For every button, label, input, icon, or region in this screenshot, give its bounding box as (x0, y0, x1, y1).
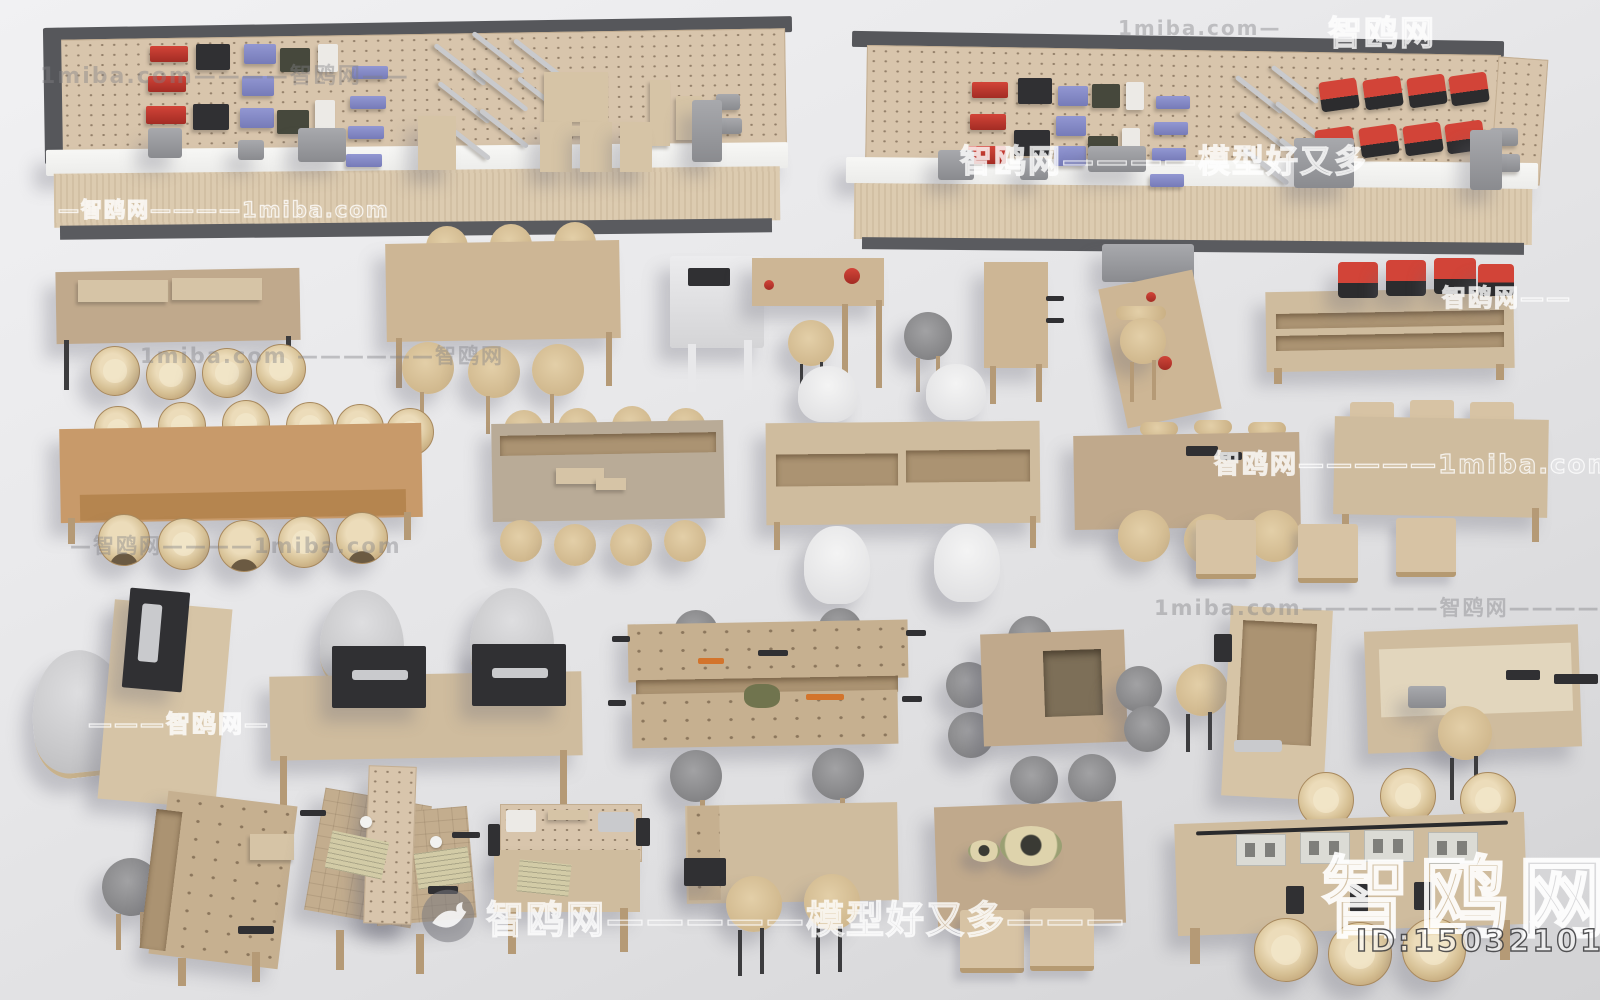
vise-handle (1046, 318, 1064, 323)
ceramic-bowl (968, 840, 1000, 862)
square-stool (1030, 908, 1094, 971)
log-stool (202, 348, 252, 398)
log-stool (146, 350, 196, 400)
table-leg (1496, 364, 1504, 380)
table-leg (404, 512, 411, 540)
worktable-top (1333, 416, 1549, 518)
wood-jig-block (580, 122, 612, 172)
clamp-handle (452, 832, 480, 838)
stool-seat (1116, 666, 1162, 712)
bottle (430, 836, 442, 848)
stool-leg (1130, 362, 1134, 402)
newspaper (414, 846, 472, 889)
stool-leg (760, 928, 764, 974)
table-leg (68, 518, 75, 544)
bench-grinder (298, 128, 346, 162)
stool-leg (1152, 360, 1156, 400)
wood-jig-block (540, 122, 572, 172)
vise-bench (984, 262, 1048, 368)
red-clamp-set (146, 106, 186, 124)
organizer-tray (500, 432, 716, 456)
power-drill (1362, 76, 1404, 111)
plier-set (352, 66, 388, 79)
plier-set (1152, 148, 1186, 161)
concrete-block (1300, 832, 1350, 864)
hand-planer (1088, 146, 1146, 172)
clamp-handle (902, 696, 922, 702)
table-leg (508, 912, 516, 954)
chair-white (804, 526, 870, 604)
organizer-tray (776, 453, 898, 486)
stool-seat (1120, 318, 1166, 364)
tool-stand (1470, 130, 1502, 190)
table-leg (1274, 368, 1282, 384)
stool-seat (532, 344, 584, 396)
log-stool (336, 512, 388, 564)
stool-seat (788, 320, 834, 366)
plier-set (348, 126, 384, 139)
stool-seat (1118, 510, 1170, 562)
square-stool (1298, 524, 1358, 583)
clamp-handle (300, 810, 326, 816)
chisel-set (244, 44, 276, 64)
mallet-pair (1014, 130, 1050, 156)
bench-tray (1237, 620, 1317, 746)
clamp-handle (1350, 884, 1368, 912)
log-stool (278, 516, 330, 568)
square-stool (1196, 520, 1256, 579)
stool-seat (554, 524, 596, 566)
machine-detail (492, 668, 548, 678)
plier-set (346, 154, 382, 167)
hand-plane (596, 478, 626, 490)
stool-leg (738, 930, 742, 976)
red-clamp-set (150, 46, 188, 62)
table-leg (64, 340, 69, 390)
concrete-block (1364, 830, 1414, 862)
tool-tray (78, 280, 168, 302)
pegboard-frame-side-left (43, 28, 63, 164)
mallet-pair (196, 44, 230, 70)
stool-seat (812, 748, 864, 800)
newspaper (516, 859, 571, 896)
dowel-set (318, 44, 338, 72)
anvil (238, 140, 264, 160)
mallet-pair (1018, 78, 1052, 104)
stool-seat (726, 876, 782, 932)
log-stool (1254, 918, 1318, 982)
shelf-bench (1265, 288, 1514, 372)
concrete-block (1428, 832, 1478, 864)
stool-leg (1186, 714, 1190, 752)
square-jig (544, 72, 608, 122)
dog-hole-strip (687, 806, 721, 901)
stool-seat (402, 342, 454, 394)
chisel-set (242, 76, 274, 96)
table-leg (774, 522, 780, 550)
power-drill (1448, 72, 1490, 107)
red-clamp-set (972, 82, 1008, 98)
bench-vise (1408, 686, 1446, 708)
bench-vise (938, 150, 974, 180)
log-stool (1402, 918, 1466, 982)
table-cutout (1043, 649, 1103, 717)
stool-leg (916, 358, 920, 392)
hammer-pair (1092, 84, 1120, 108)
stool-leg (1208, 712, 1212, 750)
watermark: 1miba.com——————智鸥网———— (1154, 592, 1600, 622)
chair-white (798, 366, 858, 422)
plier-set (1154, 122, 1188, 135)
render-canvas: 1miba.com————智鸥网—— 1miba.com— 智鸥网 智鸥网———… (0, 0, 1600, 1000)
red-dot (844, 268, 860, 284)
bracket (636, 818, 650, 846)
stool-leg (1450, 758, 1454, 800)
model-id-label: ID:150321013 (1356, 924, 1600, 959)
red-dot (1146, 292, 1156, 302)
saw-blade-slot (688, 268, 730, 286)
clamp-handle (612, 636, 630, 642)
table-leg (606, 332, 612, 386)
plier-set (350, 96, 386, 109)
hammer-pair (280, 48, 310, 72)
machine-leg (688, 344, 696, 392)
stool-seat (804, 874, 860, 930)
table-leg (1036, 364, 1042, 402)
organizer-tray (906, 449, 1030, 482)
stool-leg (486, 396, 490, 434)
clamp-handle (608, 700, 626, 706)
stool-seat (1010, 756, 1058, 804)
wood-level (650, 80, 670, 146)
stool-seat (468, 346, 520, 398)
hand-tool (1220, 452, 1242, 460)
clamp-handle (1286, 886, 1304, 914)
table-leg (416, 934, 424, 974)
log-stool (218, 520, 270, 572)
machine-detail (352, 670, 408, 680)
hand-saw (598, 812, 634, 832)
clamp-handle (1554, 674, 1598, 684)
wood-jig-block (620, 122, 652, 172)
hand-tool (1020, 158, 1048, 180)
red-clamp-set (970, 114, 1006, 130)
mallet-pair (193, 104, 229, 130)
stool-leg (116, 914, 121, 950)
tool-tray (172, 278, 262, 300)
table-leg (1500, 920, 1510, 960)
log-stool (98, 514, 150, 566)
stool-seat (1438, 706, 1492, 760)
stool-leg (816, 928, 820, 974)
clamp-handle (1234, 740, 1282, 752)
square-stool (960, 910, 1024, 973)
dowel-set (315, 100, 335, 130)
table-leg (1532, 508, 1539, 542)
bottle (360, 816, 372, 828)
counter-front-right (854, 183, 1532, 245)
ceramic-bowl (1000, 826, 1062, 866)
machine-leg (744, 340, 752, 390)
work-gloves (744, 684, 780, 708)
step-blocks (250, 834, 294, 860)
power-drill (1406, 74, 1448, 109)
screwdriver (698, 658, 724, 664)
table-leg (620, 908, 628, 952)
power-tool (1294, 138, 1354, 188)
chair-white (934, 524, 1000, 602)
stool-seat (904, 312, 952, 360)
stool-seat (1176, 664, 1228, 716)
table-leg (990, 366, 996, 404)
red-clamp-set (148, 76, 186, 92)
table-leg (1030, 516, 1036, 548)
stool-seat (1124, 706, 1170, 752)
screwdriver (806, 694, 844, 700)
power-drill (1318, 78, 1360, 113)
grinder-machine (1434, 258, 1476, 294)
scale-stand (692, 100, 722, 162)
stool-leg (838, 926, 842, 972)
chisel-set (240, 108, 274, 128)
table-leg (178, 958, 186, 986)
hand-tool (758, 650, 788, 656)
stool-seat (1068, 754, 1116, 802)
red-dot (1158, 356, 1172, 370)
chisel-set (1058, 86, 1088, 106)
power-drill (1402, 122, 1444, 157)
bench-vise (684, 858, 726, 886)
square-stool (1396, 518, 1456, 577)
chair-white (926, 364, 986, 420)
table-leg (336, 930, 344, 970)
plier-set (1150, 174, 1184, 187)
chisel-set (1056, 116, 1086, 136)
dowel-set (1126, 82, 1144, 110)
red-dot (764, 280, 774, 290)
hammer (238, 926, 274, 934)
stool-seat (610, 524, 652, 566)
chisel-set (1054, 146, 1086, 166)
clamp-handle (906, 630, 926, 636)
log-stool (1328, 922, 1392, 986)
hand-tool (1506, 670, 1540, 680)
stool-seat (670, 750, 722, 802)
hand-tool (1186, 446, 1218, 456)
log-stool (256, 344, 306, 394)
grinder-machine (1386, 260, 1426, 296)
table-leg (252, 952, 260, 982)
chart-paper (506, 810, 536, 832)
wood-pieces (548, 810, 588, 820)
bench-vise (148, 128, 182, 158)
power-drill (1358, 124, 1400, 159)
stool-back (1194, 420, 1232, 434)
table-leg (560, 750, 567, 812)
worktable-top (385, 240, 621, 342)
table-leg (876, 300, 882, 388)
vise-handle (1046, 296, 1064, 301)
plier-set (1156, 96, 1190, 109)
wood-jig-block (418, 116, 456, 170)
stool-seat (500, 520, 542, 562)
clamp-handle (1414, 882, 1432, 910)
log-stool (158, 518, 210, 570)
table-leg (396, 338, 402, 388)
bench-vise (1214, 634, 1232, 662)
concrete-block (1236, 834, 1286, 866)
stool-seat (664, 520, 706, 562)
grinder-machine (1478, 264, 1514, 296)
grinder-machine (1338, 262, 1378, 298)
table-leg (1190, 928, 1200, 964)
clamp-handle (428, 886, 458, 894)
log-stool (90, 346, 140, 396)
bracket (488, 824, 500, 856)
